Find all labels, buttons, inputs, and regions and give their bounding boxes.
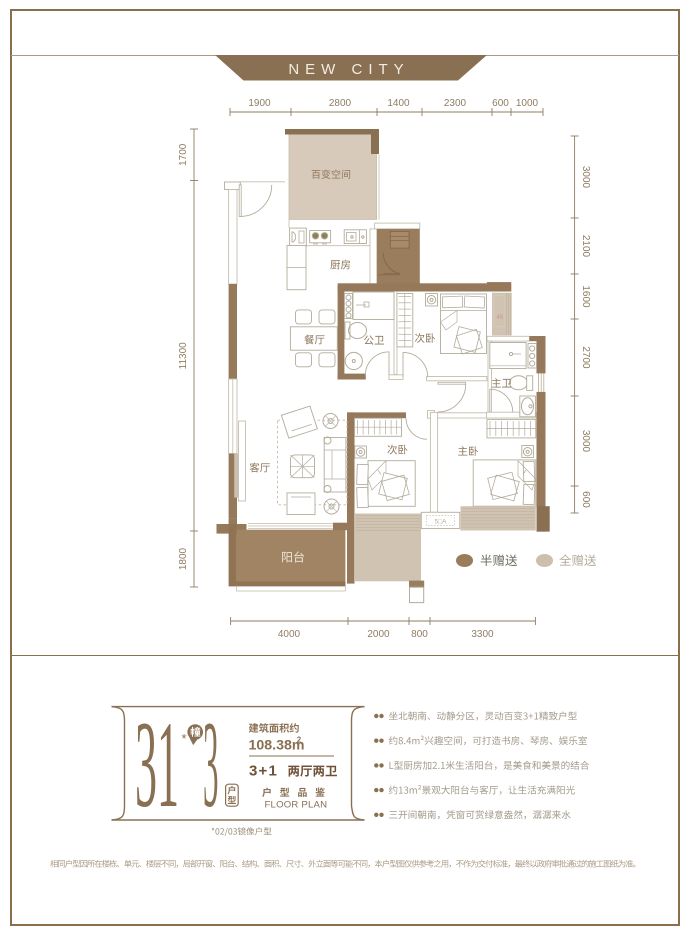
svg-text:5□A: 5□A [435, 519, 448, 526]
svg-text:45: 45 [497, 315, 504, 321]
svg-text:11300: 11300 [178, 342, 189, 370]
svg-text:4000: 4000 [278, 629, 301, 640]
svg-text:3: 3 [203, 695, 218, 834]
svg-text:600: 600 [492, 98, 509, 109]
svg-text:FLOOR PLAN: FLOOR PLAN [265, 800, 328, 811]
svg-text:800: 800 [411, 629, 428, 640]
svg-text:1400: 1400 [387, 98, 410, 109]
svg-text:1900: 1900 [248, 98, 271, 109]
svg-text:1800: 1800 [178, 547, 189, 570]
svg-text:2700: 2700 [580, 346, 591, 369]
svg-text:1700: 1700 [178, 143, 189, 166]
svg-text:3000: 3000 [580, 166, 591, 189]
svg-text:600: 600 [580, 491, 591, 508]
svg-text:3000: 3000 [580, 430, 591, 453]
svg-text:2100: 2100 [580, 235, 591, 258]
svg-text:3+1: 3+1 [249, 763, 278, 780]
svg-text:*: * [182, 731, 187, 746]
svg-text:2000: 2000 [367, 629, 390, 640]
svg-text:2800: 2800 [329, 98, 352, 109]
svg-text:3300: 3300 [471, 629, 494, 640]
svg-text:2: 2 [297, 736, 302, 745]
svg-text:1600: 1600 [580, 285, 591, 308]
svg-text:NEW CITY: NEW CITY [288, 61, 409, 78]
svg-text:2300: 2300 [444, 98, 467, 109]
svg-text:31: 31 [135, 697, 179, 834]
svg-text:1000: 1000 [516, 98, 539, 109]
